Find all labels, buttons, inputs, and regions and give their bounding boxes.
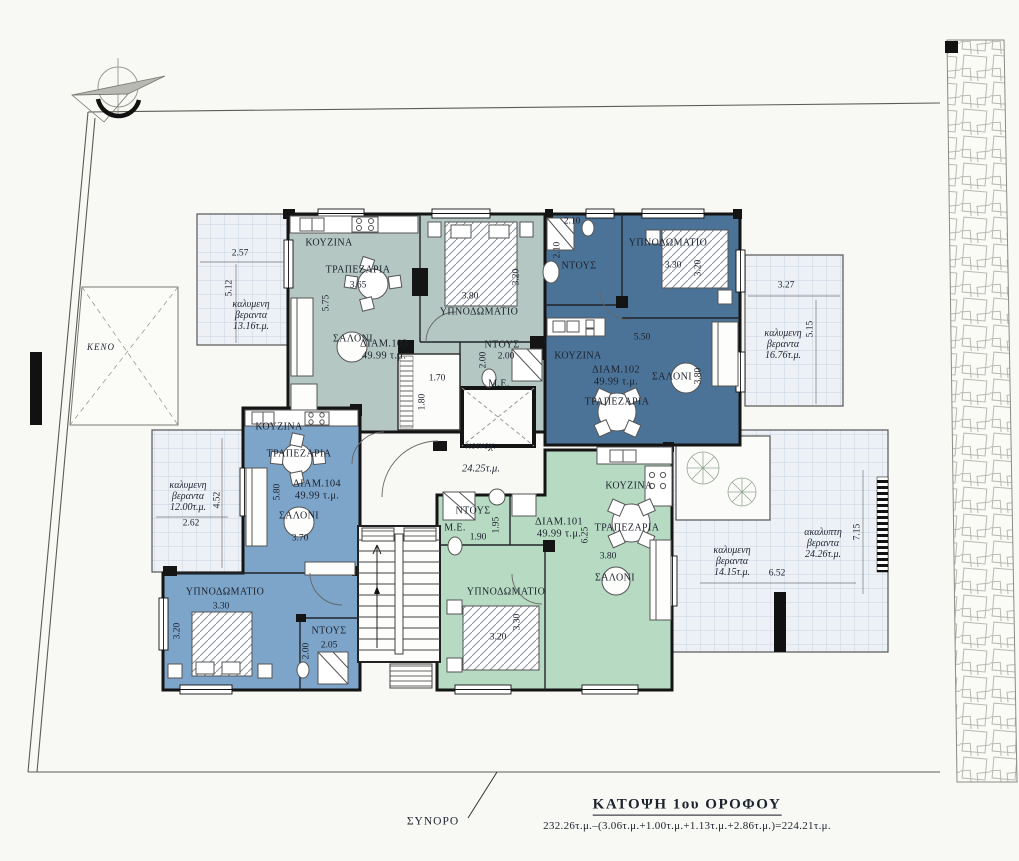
void-area: [30, 287, 178, 425]
staircase: [358, 526, 440, 688]
veranda-top-right: [745, 255, 843, 406]
railing-detail: [877, 477, 888, 572]
north-arrow-icon: [72, 58, 165, 122]
elevator: [462, 388, 534, 446]
veranda-divider-wall: [774, 592, 786, 652]
boundary-leader-line: [468, 772, 497, 818]
floor-plan-page: ΚΟΥΖΙΝΑΤΡΑΠΕΖΑΡΙΑΣΑΛΟΝΙΥΠΝΟΔΩΜΑΤΙΟΝΤΟΥΣΜ…: [0, 0, 1019, 861]
veranda-top-left: [197, 214, 288, 345]
stone-wall-strip: [945, 40, 1017, 782]
floor-plan-drawing: [0, 0, 1019, 861]
utility-room: [398, 354, 460, 430]
planted-bed: [676, 436, 770, 520]
